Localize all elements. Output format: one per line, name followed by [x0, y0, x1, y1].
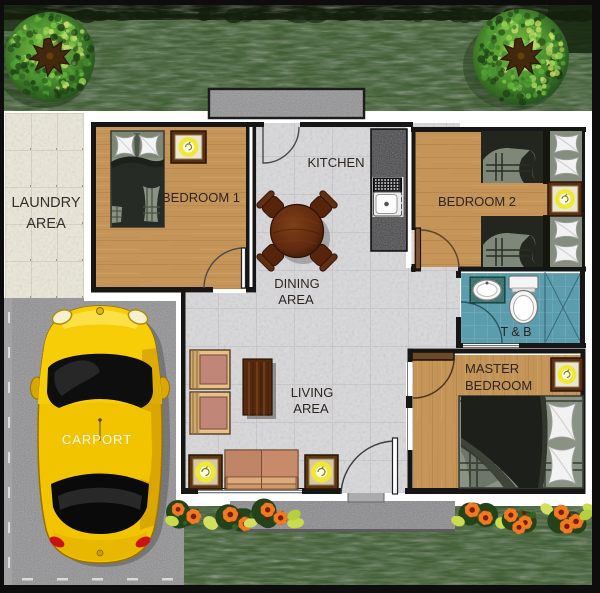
svg-text:T & B: T & B: [500, 325, 531, 339]
svg-text:AREA: AREA: [278, 292, 314, 307]
svg-text:BEDROOM 2: BEDROOM 2: [438, 194, 516, 209]
svg-text:BEDROOM 1: BEDROOM 1: [162, 190, 240, 205]
svg-text:AREA: AREA: [293, 401, 329, 416]
svg-text:MASTER: MASTER: [465, 361, 519, 376]
svg-text:LAUNDRY: LAUNDRY: [11, 195, 80, 211]
svg-text:KITCHEN: KITCHEN: [307, 155, 364, 170]
svg-text:LIVING: LIVING: [291, 385, 334, 400]
svg-text:AREA: AREA: [26, 216, 66, 232]
svg-text:DINING: DINING: [274, 276, 320, 291]
svg-text:CARPORT: CARPORT: [62, 432, 132, 447]
svg-text:BEDROOM: BEDROOM: [465, 378, 532, 393]
